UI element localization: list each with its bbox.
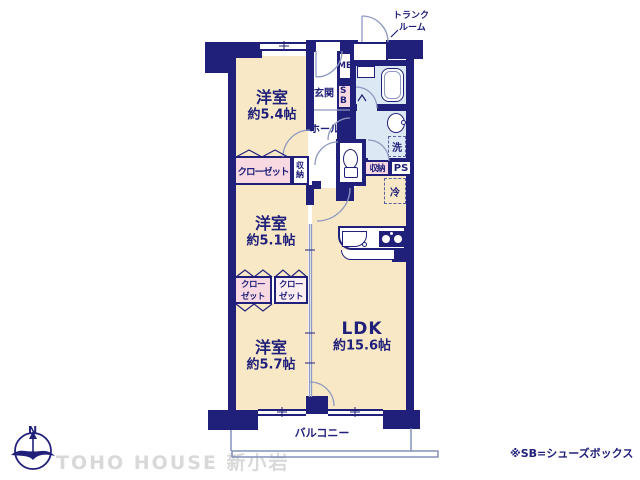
ldk-door-arc [317, 188, 350, 221]
hall-label: ホール [310, 124, 340, 136]
ldk-size: 約15.6帖 [333, 340, 391, 355]
compass-icon: N [8, 422, 60, 476]
trunk-room-label-line1: トランク [393, 12, 429, 22]
trunk-label-leader [391, 30, 398, 37]
bath-corner-mark [358, 95, 366, 101]
entrance-label: 玄関 [314, 88, 334, 100]
note-text: ※SB=シューズボックス [510, 445, 633, 461]
trunk-door-arc [362, 16, 388, 42]
bath-door-arc [356, 87, 377, 108]
floorplan-linework-layer [0, 0, 640, 480]
bedroom1-name: 洋室 [256, 89, 288, 107]
bedroom3-name: 洋室 [255, 339, 287, 357]
bedroom2-name: 洋室 [255, 215, 287, 233]
washroom-lower-door-arc [368, 140, 389, 161]
bedroom1-size: 約5.4帖 [247, 109, 296, 124]
balcony-label: バルコニー [295, 428, 350, 441]
compass-north-label: N [28, 424, 37, 437]
front-door-arc [316, 51, 342, 77]
toilet-door-arc [315, 142, 338, 165]
closet-small-left-folding-door-bottom [236, 304, 272, 311]
trunk-room-label-line2: ルーム [399, 24, 426, 34]
floorplan-canvas: TOHO HOUSE 新小岩 MB SB クローゼット 収納 [0, 0, 640, 480]
bedroom3-door-arc [310, 382, 334, 406]
bedroom2-size: 約5.1帖 [246, 235, 295, 250]
ldk-name: LDK [341, 320, 382, 340]
bedroom3-size: 約5.7帖 [246, 359, 295, 374]
closet-large-folding-door [236, 150, 288, 157]
closet-small-left-folding-door-top [236, 270, 272, 277]
bedroom1-door-arc [283, 130, 310, 157]
closet-small-right-folding-door [275, 270, 307, 277]
